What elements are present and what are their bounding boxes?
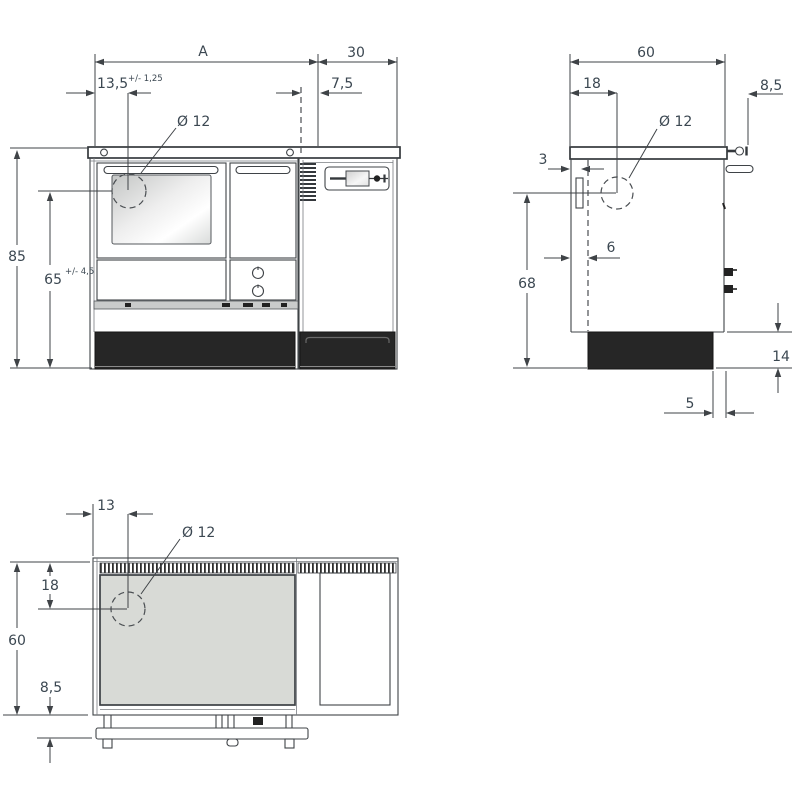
front-dim-height-label: 85 [8,249,26,265]
side-connector-lower [724,285,733,293]
stove-dimension-drawing: A 30 13,5 +/- 1,25 7,5 Ø 12 85 [0,0,800,800]
front-dim-module-width-label: 30 [347,45,365,61]
top-dim-flue-diameter-label: Ø 12 [182,525,215,541]
side-dim-plinth-recess-label: 5 [686,396,695,412]
side-dim-back-gap-label: 3 [539,152,548,168]
side-dim-depth-label: 60 [637,45,655,61]
top-grate-right [298,563,396,573]
top-dim-flue-offset-x-label: 13 [97,498,115,514]
top-cooktop [100,575,295,705]
side-dim-rail-depth-label: 8,5 [760,78,782,94]
front-dim-flue-height-tolerance: +/- 4,5 [65,267,94,277]
front-dim-flue-offset-label: 13,5 [97,76,128,92]
front-dim-flue-offset-tolerance: +/- 1,25 [128,74,163,84]
front-dim-flue-height-label: 65 [44,272,62,288]
side-plinth [588,332,713,369]
side-dim-flue-diameter-label: Ø 12 [659,114,692,130]
top-connector [253,717,263,725]
front-control-display [346,171,369,186]
front-dim-offset-right-label: 7,5 [331,76,353,92]
side-connector-upper [724,268,733,276]
top-dim-front-margin-label: 8,5 [40,680,62,696]
side-dim-plinth-height-label: 14 [772,349,790,365]
front-dim-flue-diameter-label: Ø 12 [177,114,210,130]
side-dim-flue-offset-label: 18 [583,76,601,92]
top-dim-flue-offset-y-label: 18 [41,578,59,594]
front-oven-glass [112,175,211,244]
top-grate-left [100,563,294,573]
side-dim-flue-height-label: 68 [518,276,536,292]
technical-drawing-page: A 30 13,5 +/- 1,25 7,5 Ø 12 85 [0,0,800,800]
top-dim-depth-label: 60 [8,633,26,649]
front-plinth [95,332,295,369]
front-dim-overall-width-label: A [198,44,208,60]
front-control-knob [374,175,380,181]
side-dim-flue-axis-label: 6 [607,240,616,256]
